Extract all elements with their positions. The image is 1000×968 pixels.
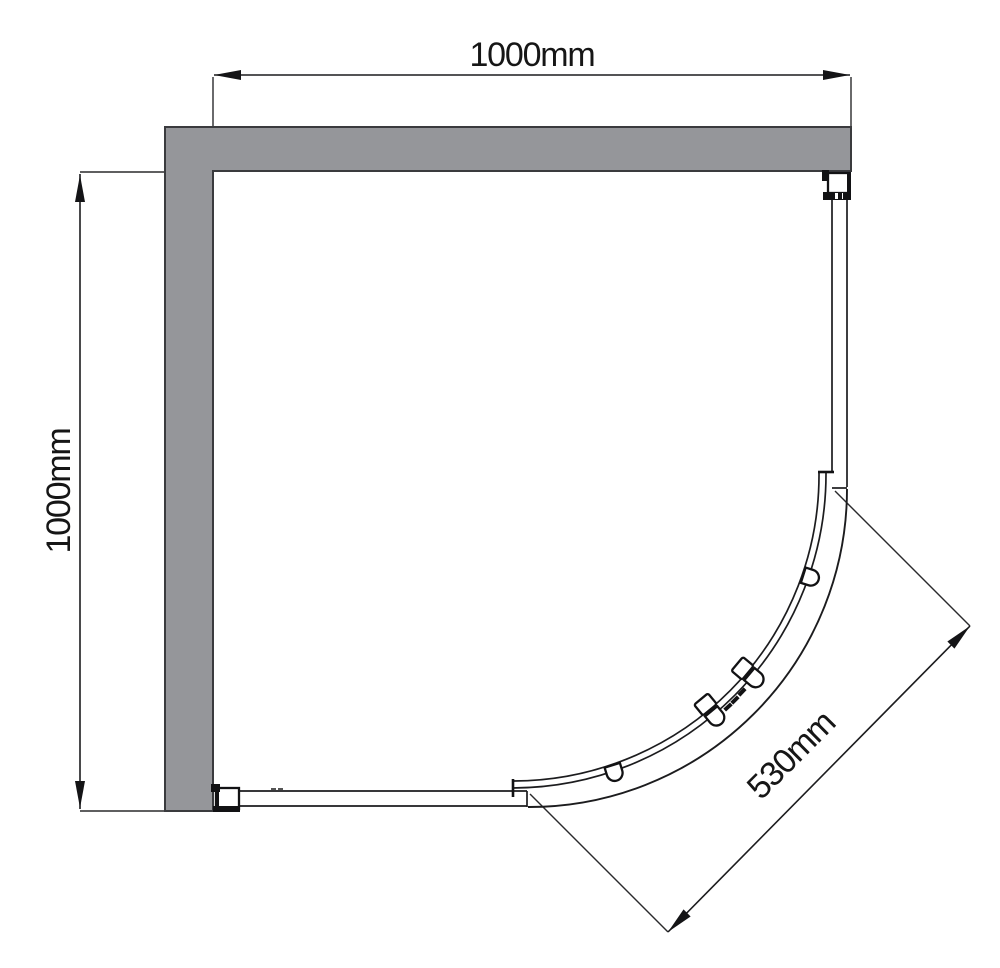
top-dimension-arrow-left-icon [214,70,241,80]
roller-cap-icon [605,763,625,783]
top-dimension: 1000mm [213,36,851,126]
bracket-base [213,806,240,812]
right-fixed-panel [822,170,851,488]
curved-door-glass-inner [514,473,819,781]
bracket-lug [822,170,829,181]
door-roller-top [801,568,821,588]
diagonal-dimension: 530mm [530,491,974,936]
door-handle-lower [694,693,728,729]
bracket-lug [211,784,220,792]
left-dimension: 1000mm [40,172,164,811]
bracket-body [828,173,849,193]
seal-dash [730,695,739,704]
top-dimension-label: 1000mm [469,36,594,74]
diagonal-dimension-extension-top [835,491,970,626]
diagonal-dimension-extension-bottom [530,794,668,932]
bottom-panel-seal-mark-2 [278,788,283,791]
door-roller-bottom [605,763,625,783]
wall-structure [165,127,851,811]
door-handle-upper [731,657,767,691]
right-panel-wall-bracket [822,170,851,200]
technical-drawing-canvas: 1000mm 1000mm 530mm [0,0,1000,968]
bracket-pin [838,193,842,200]
left-dimension-arrow-bottom-icon [75,781,85,808]
roller-cap-icon [801,568,821,588]
door-overlap-seal-2 [730,695,739,704]
left-dimension-label: 1000mm [40,428,78,553]
bottom-panel-wall-bracket [211,784,240,812]
diagonal-dimension-arrow-lower-icon [664,909,690,935]
left-dimension-arrow-top-icon [75,175,85,202]
shower-enclosure-plan-svg: 1000mm 1000mm 530mm [0,0,1000,968]
bottom-fixed-panel [211,784,527,812]
bottom-panel-seal-mark-1 [271,788,276,791]
diagonal-dimension-arrow-upper-icon [947,622,973,648]
diagonal-dimension-label: 530mm [740,704,843,807]
top-dimension-arrow-right-icon [823,70,850,80]
diagonal-dimension-line [668,626,970,932]
